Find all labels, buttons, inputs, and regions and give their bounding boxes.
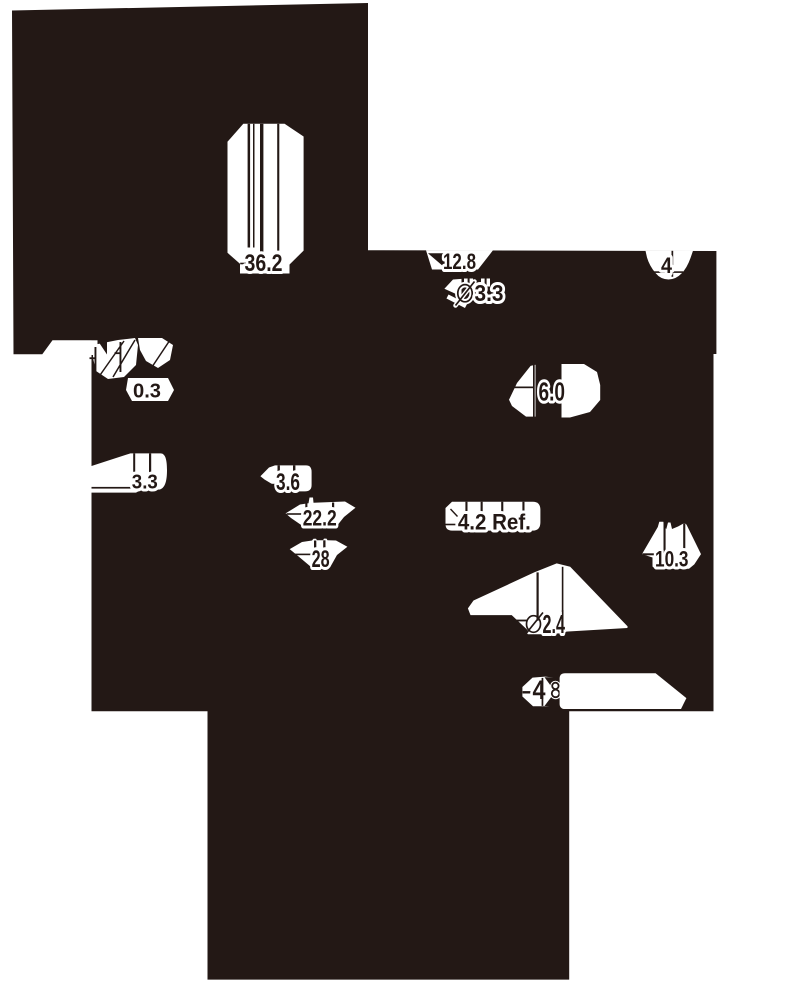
svg-text:22.2: 22.2 [303,506,337,531]
svg-text:12.8: 12.8 [443,249,476,274]
svg-text:3.3: 3.3 [475,280,504,306]
svg-text:28: 28 [312,546,330,573]
svg-text:0.3: 0.3 [133,381,161,403]
svg-text:36.2: 36.2 [245,250,283,277]
svg-text:3.3: 3.3 [132,471,158,493]
svg-text:6.0: 6.0 [539,376,566,406]
svg-text:10.3: 10.3 [655,546,689,571]
svg-text:4.2 Ref.: 4.2 Ref. [458,510,531,535]
svg-text:4: 4 [533,675,546,705]
svg-text:3.6: 3.6 [276,469,300,496]
svg-text:4: 4 [661,253,673,278]
